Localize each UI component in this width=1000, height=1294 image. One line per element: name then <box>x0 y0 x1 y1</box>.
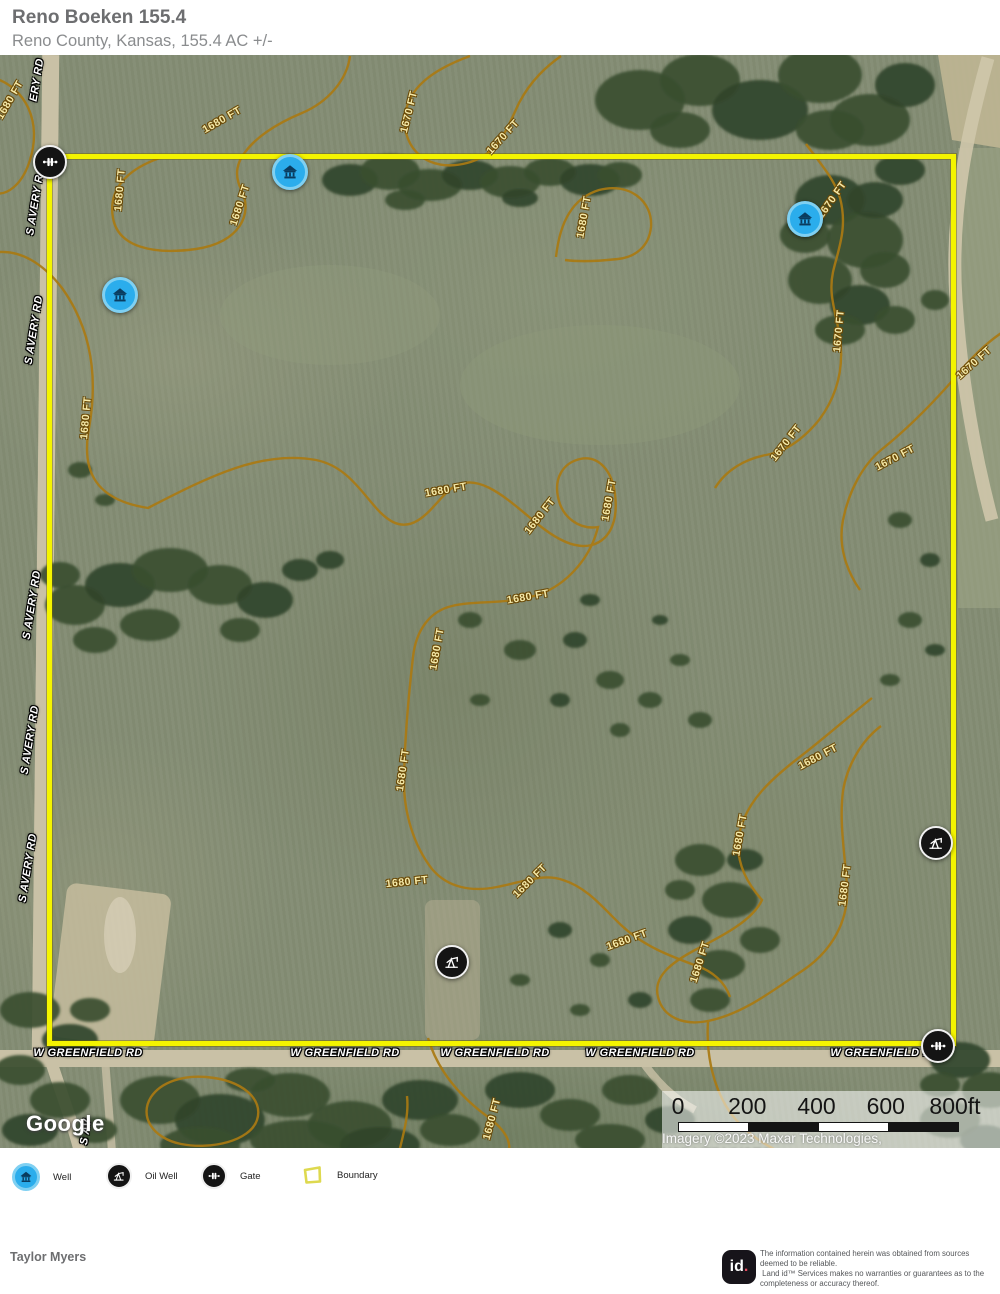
tree-blob <box>225 1068 275 1092</box>
tree-blob <box>420 1114 480 1146</box>
legend-label: Boundary <box>337 1170 378 1181</box>
land-id-logo-text: id <box>730 1258 744 1276</box>
oil-well-icon <box>112 1169 126 1183</box>
disclaimer-line: completeness or accuracy thereof. <box>760 1279 1000 1289</box>
page-subtitle: Reno County, Kansas, 155.4 AC +/- <box>12 30 273 52</box>
scale-tick-label: 800ft <box>929 1093 980 1120</box>
header: Reno Boeken 155.4 Reno County, Kansas, 1… <box>12 6 273 52</box>
legend-item-well: Well <box>12 1163 71 1191</box>
road-label: W GREENFIELD RD <box>290 1047 399 1059</box>
oil-well-marker[interactable] <box>919 826 953 860</box>
well-icon <box>796 210 814 228</box>
page-title: Reno Boeken 155.4 <box>12 6 273 30</box>
google-logo[interactable]: Google <box>26 1111 105 1137</box>
legend-label: Well <box>53 1172 71 1183</box>
prepared-by: Taylor Myers <box>10 1250 86 1264</box>
well-marker[interactable] <box>787 201 823 237</box>
gate-icon <box>929 1037 947 1055</box>
oil-well-marker[interactable] <box>435 945 469 979</box>
road-label: W GREENFIELD RD <box>585 1047 694 1059</box>
property-boundary <box>47 154 956 1046</box>
tree-blob <box>382 1080 458 1120</box>
well-icon <box>281 163 299 181</box>
scale-tick-label: 0 <box>672 1093 685 1120</box>
gate-marker[interactable] <box>921 1029 955 1063</box>
legend-item-oil-well: Oil Well <box>106 1163 178 1189</box>
scale-tick-label: 200 <box>728 1093 766 1120</box>
disclaimer-line: Land id™ Services makes no warranties or… <box>760 1269 1000 1279</box>
gate-marker[interactable] <box>33 145 67 179</box>
legend: WellOil WellGateBoundary <box>0 1155 1000 1199</box>
imagery-attribution: Imagery ©2023 Maxar Technologies, USDA/F… <box>662 1131 995 1148</box>
road-label: W GREENFIELD RD <box>440 1047 549 1059</box>
legend-label: Gate <box>240 1171 261 1182</box>
disclaimer-line: deemed to be reliable. <box>760 1259 1000 1269</box>
land-id-logo: id. <box>722 1250 756 1284</box>
legend-item-gate: Gate <box>201 1163 261 1189</box>
scale-bar: 0200400600800ft Imagery ©2023 Maxar Tech… <box>662 1091 1000 1148</box>
scale-tick-label: 400 <box>797 1093 835 1120</box>
boundary-swatch-icon <box>300 1163 324 1187</box>
map-canvas[interactable]: W GREENFIELD RDW GREENFIELD RDW GREENFIE… <box>0 55 1000 1148</box>
tree-blob <box>875 63 935 107</box>
gate-icon <box>207 1169 221 1183</box>
scale-tick-label: 600 <box>867 1093 905 1120</box>
well-marker[interactable] <box>272 154 308 190</box>
oil-well-icon <box>927 834 945 852</box>
road-label: W GREENFIELD RD <box>33 1047 142 1059</box>
tree-blob <box>540 1099 600 1131</box>
gate-icon <box>41 153 59 171</box>
well-icon <box>19 1170 33 1184</box>
well-icon <box>111 286 129 304</box>
gate-legend-icon <box>201 1163 227 1189</box>
boundary-legend-icon <box>300 1163 324 1187</box>
legend-label: Oil Well <box>145 1171 178 1182</box>
oil-well-icon <box>443 953 461 971</box>
land-id-logo-dot: . <box>744 1258 748 1276</box>
legend-item-boundary: Boundary <box>300 1163 378 1187</box>
disclaimer-line: The information contained herein was obt… <box>760 1249 1000 1259</box>
oil-well-legend-icon <box>106 1163 132 1189</box>
disclaimer: The information contained herein was obt… <box>760 1249 1000 1289</box>
tree-blob <box>650 112 710 148</box>
well-legend-icon <box>12 1163 40 1191</box>
page: Reno Boeken 155.4 Reno County, Kansas, 1… <box>0 0 1000 1294</box>
well-marker[interactable] <box>102 277 138 313</box>
tree-blob <box>602 1075 658 1105</box>
